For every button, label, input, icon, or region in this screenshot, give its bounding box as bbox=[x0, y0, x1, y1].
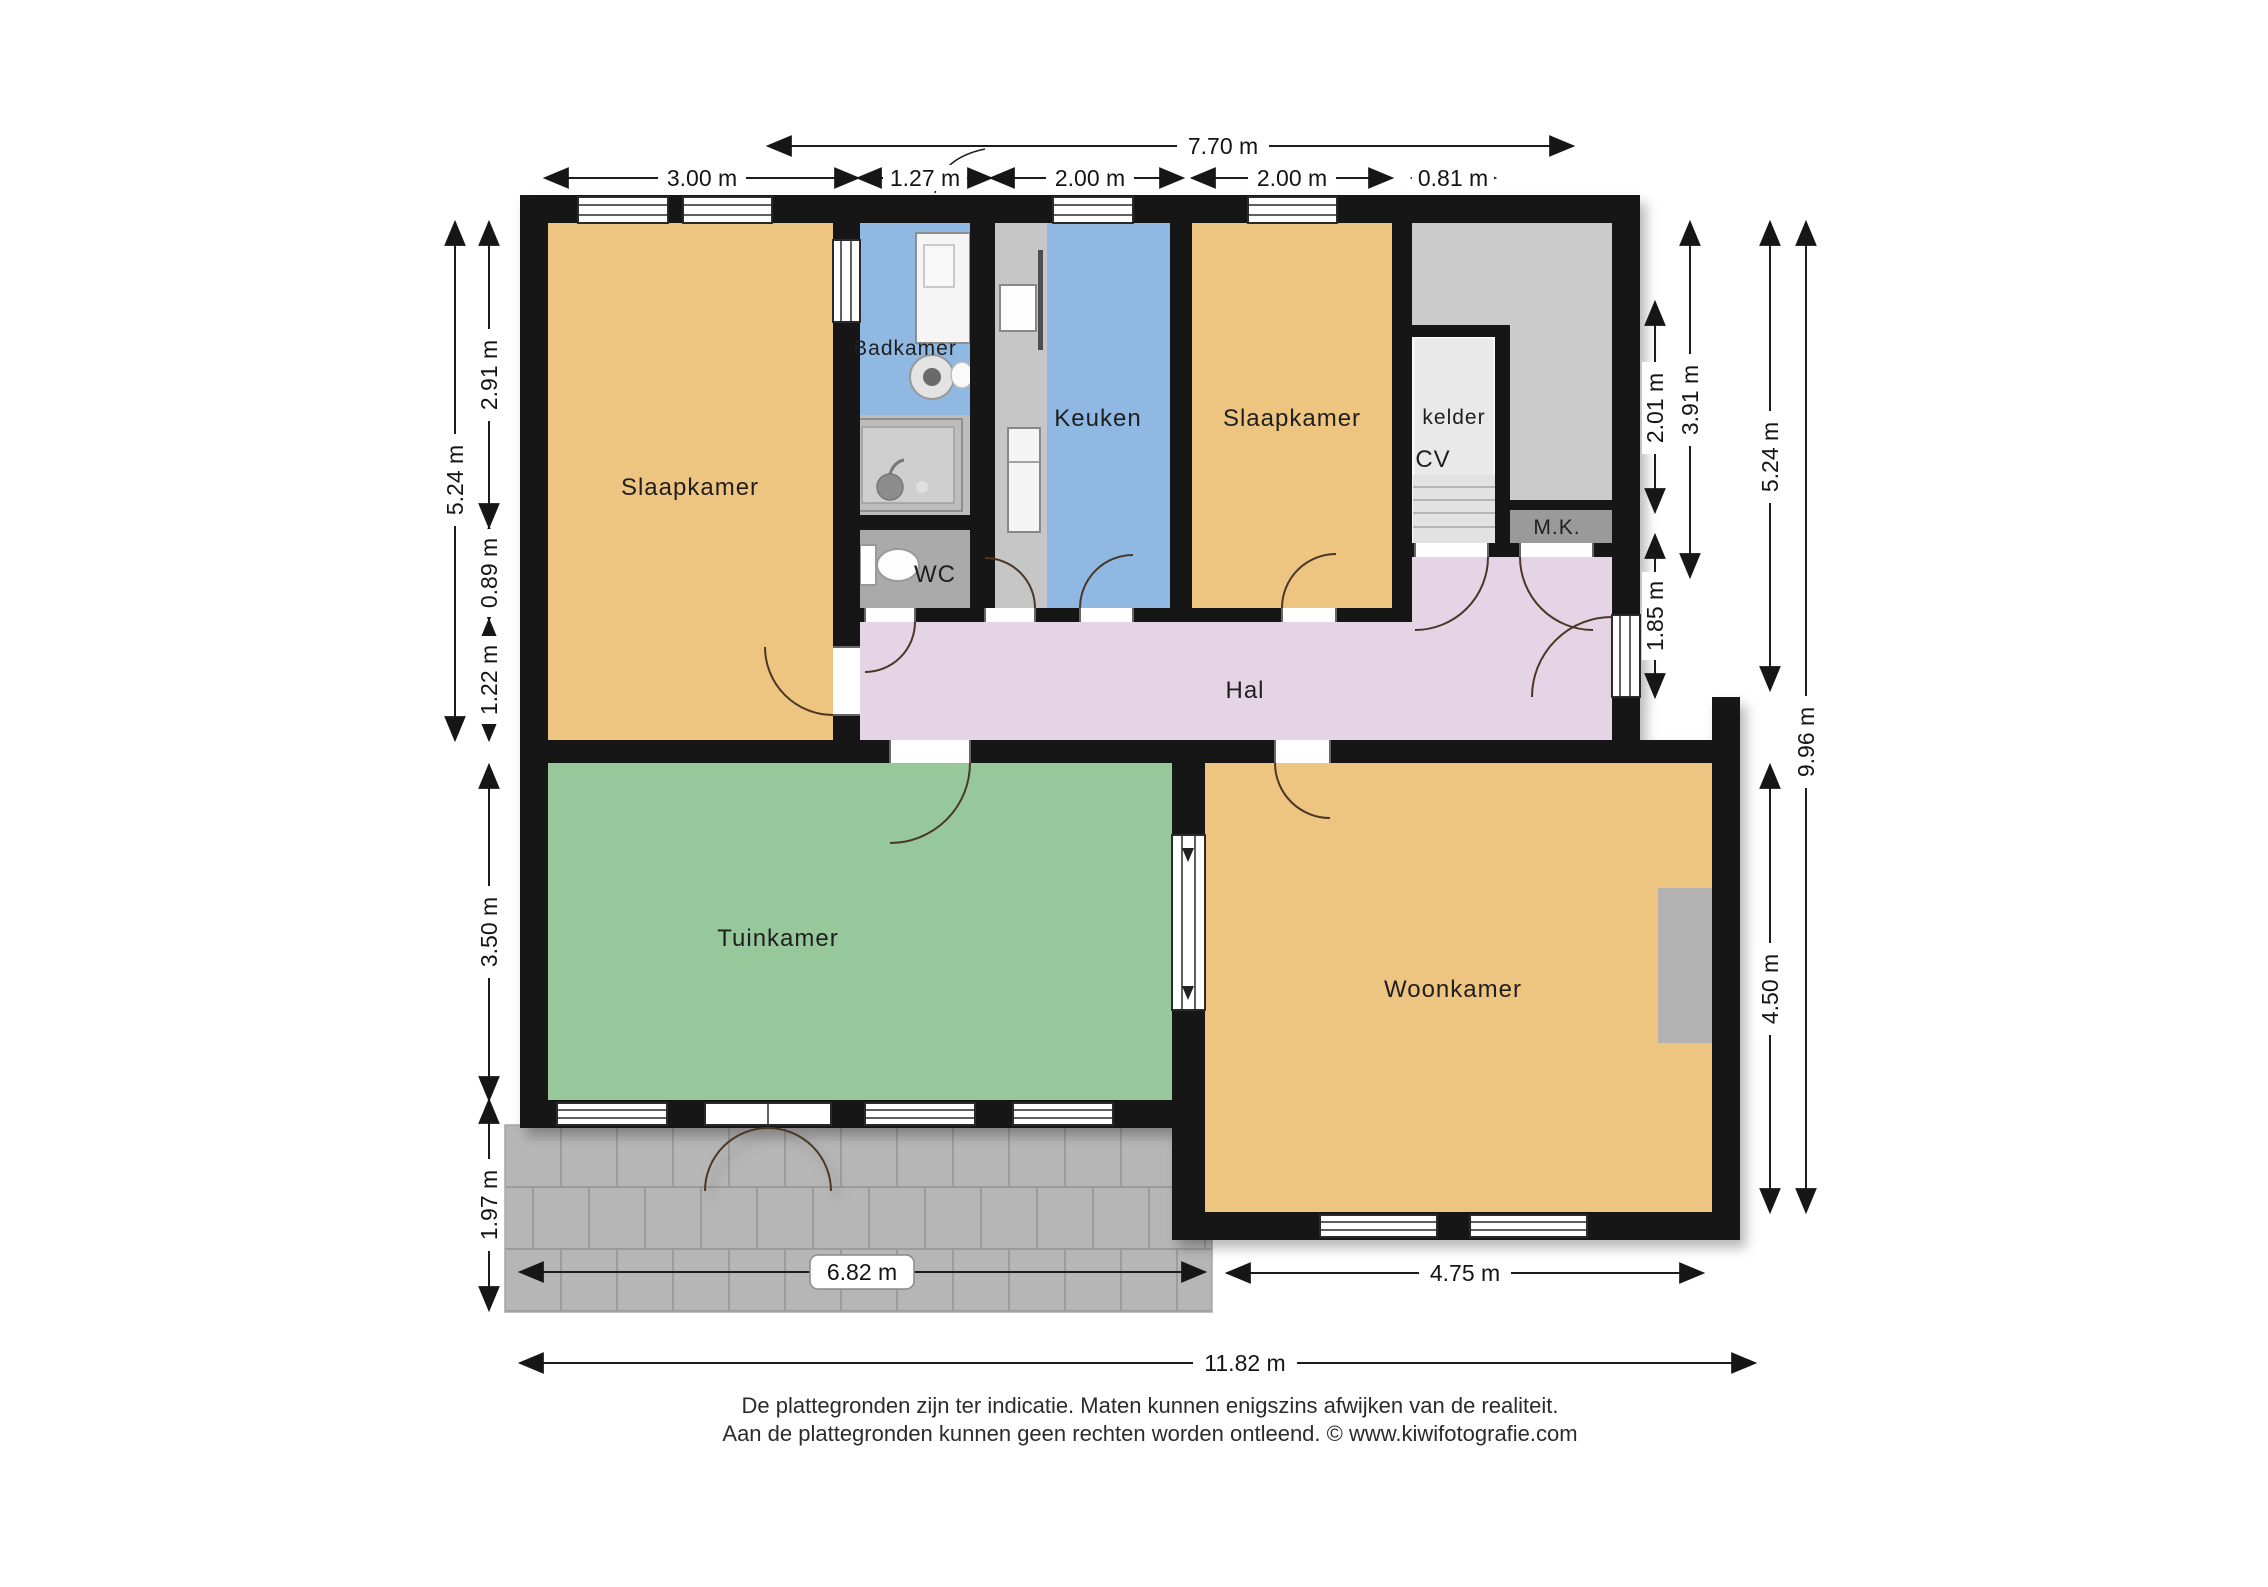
kitchen-counter bbox=[995, 223, 1047, 608]
dimension-label: 0.81 m bbox=[1418, 165, 1488, 191]
appliance-icon bbox=[1000, 285, 1036, 331]
dimension-label: 2.00 m bbox=[1257, 165, 1327, 191]
dimension-label: 7.70 m bbox=[1188, 133, 1258, 159]
room-label: Keuken bbox=[1054, 405, 1141, 432]
wall bbox=[1510, 500, 1612, 510]
room-label: Badkamer bbox=[853, 337, 957, 360]
room-label: M.K. bbox=[1533, 516, 1580, 539]
window bbox=[1470, 1215, 1587, 1237]
wall bbox=[1400, 325, 1510, 337]
dimension-label: 3.91 m bbox=[1677, 365, 1703, 435]
wall bbox=[1495, 325, 1510, 543]
dimension-label: 3.00 m bbox=[667, 165, 737, 191]
dimension-label: 1.22 m bbox=[476, 645, 502, 715]
wall bbox=[1712, 697, 1740, 1240]
window bbox=[557, 1103, 667, 1125]
dimension-label: 11.82 m bbox=[1204, 1350, 1285, 1376]
room-label: WC bbox=[914, 561, 956, 588]
floorplan-drawing: Slaapkamer Badkamer Keuken Slaapkamer ke… bbox=[0, 0, 2268, 1587]
dimension-label: 1.27 m bbox=[890, 165, 960, 191]
wall bbox=[520, 740, 1712, 763]
room-label: Hal bbox=[1225, 677, 1264, 704]
wall bbox=[1170, 223, 1192, 608]
room-label: Woonkamer bbox=[1384, 976, 1522, 1003]
wall bbox=[833, 515, 970, 530]
dimension-label: 9.96 m bbox=[1793, 707, 1819, 777]
dimension-label: 2.01 m bbox=[1642, 373, 1668, 443]
badkamer-fixtures bbox=[910, 233, 973, 399]
fireplace bbox=[1658, 888, 1712, 1043]
dimension-label: 1.97 m bbox=[476, 1170, 502, 1240]
disclaimer: De plattegronden zijn ter indicatie. Mat… bbox=[722, 1393, 1577, 1446]
floorplan-page: Slaapkamer Badkamer Keuken Slaapkamer ke… bbox=[0, 0, 2268, 1587]
interior-window bbox=[833, 240, 860, 322]
dimension-label: 6.82 m bbox=[827, 1259, 897, 1285]
wall bbox=[1172, 1212, 1740, 1240]
window bbox=[683, 197, 772, 223]
dimension-label: 2.91 m bbox=[476, 340, 502, 410]
stairs-icon bbox=[1413, 475, 1495, 543]
room-storage-top bbox=[1412, 222, 1612, 325]
dimension-label: 4.75 m bbox=[1430, 1260, 1500, 1286]
dimension-label: 0.89 m bbox=[476, 538, 502, 608]
wall bbox=[520, 195, 548, 1128]
window bbox=[1013, 1103, 1113, 1125]
disclaimer-line-1: De plattegronden zijn ter indicatie. Mat… bbox=[742, 1393, 1559, 1418]
wall bbox=[970, 223, 995, 608]
room-storage-right bbox=[1510, 325, 1612, 500]
disclaimer-line-2: Aan de plattegronden kunnen geen rechten… bbox=[722, 1421, 1577, 1446]
window bbox=[865, 1103, 975, 1125]
room-label: Tuinkamer bbox=[717, 925, 838, 952]
window bbox=[1320, 1215, 1437, 1237]
wall bbox=[1392, 223, 1412, 608]
dimension-label: 2.00 m bbox=[1055, 165, 1125, 191]
room-label: Slaapkamer bbox=[1223, 405, 1361, 432]
passage-opening bbox=[1172, 835, 1205, 1010]
dimension-label: 5.24 m bbox=[442, 445, 468, 515]
dimension-label: 3.50 m bbox=[476, 897, 502, 967]
toilet-icon bbox=[860, 545, 919, 585]
room-label: Slaapkamer bbox=[621, 474, 759, 501]
room-label: kelder bbox=[1422, 406, 1485, 429]
dimension-label: 1.85 m bbox=[1642, 581, 1668, 651]
room-tuinkamer bbox=[548, 763, 1172, 1100]
stove-icon bbox=[1008, 428, 1040, 532]
room-label: CV bbox=[1415, 446, 1450, 473]
window bbox=[578, 197, 668, 223]
dimension-label: 5.24 m bbox=[1757, 422, 1783, 492]
shower-icon bbox=[854, 419, 962, 511]
window bbox=[1248, 197, 1337, 223]
dimension-label: 4.50 m bbox=[1757, 954, 1783, 1024]
window bbox=[1053, 197, 1133, 223]
